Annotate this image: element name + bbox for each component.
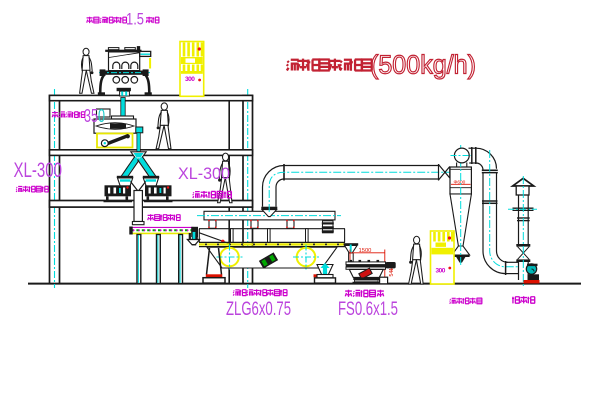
svg-text:XL-300: XL-300 [178,165,230,183]
svg-text:1500: 1500 [359,248,372,254]
svg-text:ZLG6x0.75: ZLG6x0.75 [226,299,291,320]
svg-text:541: 541 [389,268,395,277]
svg-text:300: 300 [185,76,195,83]
svg-text:300: 300 [436,268,446,275]
svg-text:1.5: 1.5 [126,10,144,29]
svg-text:(500kg/h): (500kg/h) [370,52,476,80]
svg-text:Φ600: Φ600 [454,180,466,186]
svg-text:350: 350 [84,106,105,126]
svg-text:FS0.6x1.5: FS0.6x1.5 [338,299,398,320]
svg-text:XL-300: XL-300 [14,159,63,182]
